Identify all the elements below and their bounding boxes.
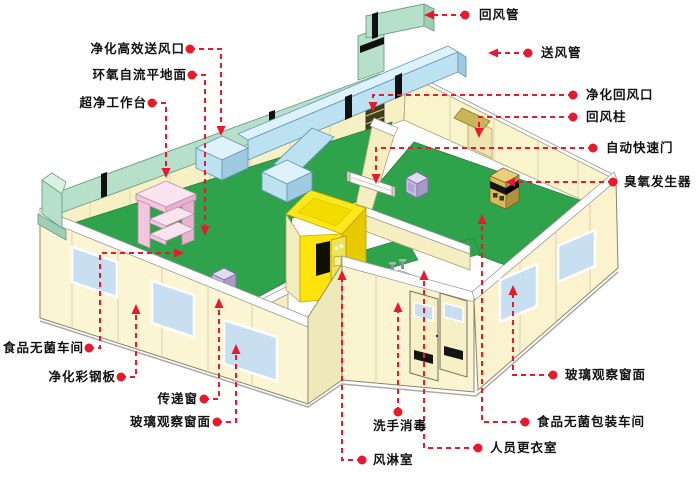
arrow-up-icon <box>420 270 429 280</box>
ozone-generator-graphic <box>490 168 519 209</box>
label-return-air-column: 回风柱 <box>586 110 627 124</box>
label-purified-return-air-outlet: 净化回风口 <box>586 88 654 102</box>
label-epoxy-self-leveling-floor: 环氧自流平地面 <box>92 68 187 82</box>
label-hand-wash-disinfection: 洗手消毒 <box>373 419 427 433</box>
label-glass-observation-window-right: 玻璃观察窗面 <box>565 368 646 382</box>
front-recessed-wall <box>342 256 474 392</box>
cleanroom-diagram: 净化高效送风口 环氧自流平地面 超净工作台 食品无菌车间 净化彩钢板 传递窗 玻… <box>0 0 700 477</box>
label-hepa-supply-outlet: 净化高效送风口 <box>90 42 185 56</box>
pass-box-graphic <box>406 172 428 198</box>
label-food-sterile-packaging-workshop: 食品无菌包装车间 <box>537 415 645 429</box>
label-glass-observation-window-left: 玻璃观察窗面 <box>130 415 211 429</box>
clean-bench-graphic <box>136 181 196 248</box>
label-purified-color-steel-panel: 净化彩钢板 <box>48 370 116 384</box>
label-transfer-window: 传递窗 <box>157 392 198 406</box>
label-return-air-duct: 回风管 <box>479 8 520 22</box>
label-clean-bench: 超净工作台 <box>79 96 147 110</box>
air-shower-doorway <box>316 241 330 276</box>
label-automatic-rapid-door: 自动快速门 <box>606 141 674 155</box>
label-air-shower-room: 风淋室 <box>373 453 414 467</box>
label-ozone-generator: 臭氧发生器 <box>624 175 692 189</box>
changing-room-doors-graphic <box>410 291 467 381</box>
arrow-left-icon <box>488 49 498 58</box>
label-staff-changing-room: 人员更衣室 <box>490 441 558 455</box>
label-food-sterile-workshop: 食品无菌车间 <box>3 341 84 355</box>
label-supply-air-duct: 送风管 <box>541 46 582 60</box>
leader-supply-air-duct <box>488 49 533 58</box>
